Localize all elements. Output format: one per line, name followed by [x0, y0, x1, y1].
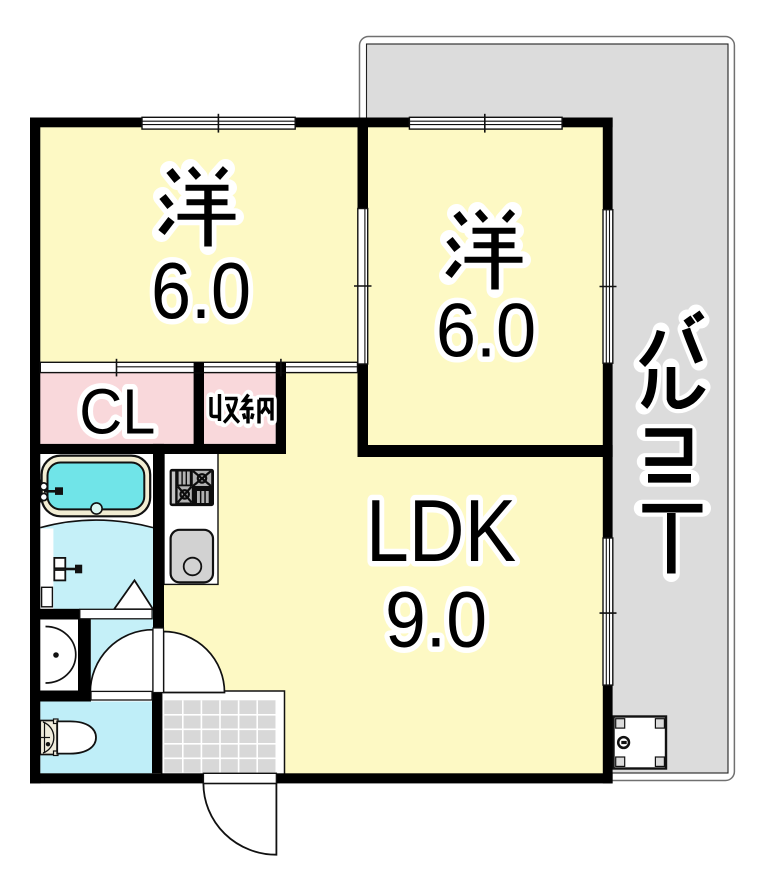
svg-text:9.0: 9.0: [385, 576, 487, 664]
svg-text:CL: CL: [79, 377, 155, 448]
svg-text:6.0: 6.0: [151, 247, 251, 336]
svg-text:6.0: 6.0: [436, 288, 536, 373]
svg-text:LDK: LDK: [366, 481, 516, 580]
